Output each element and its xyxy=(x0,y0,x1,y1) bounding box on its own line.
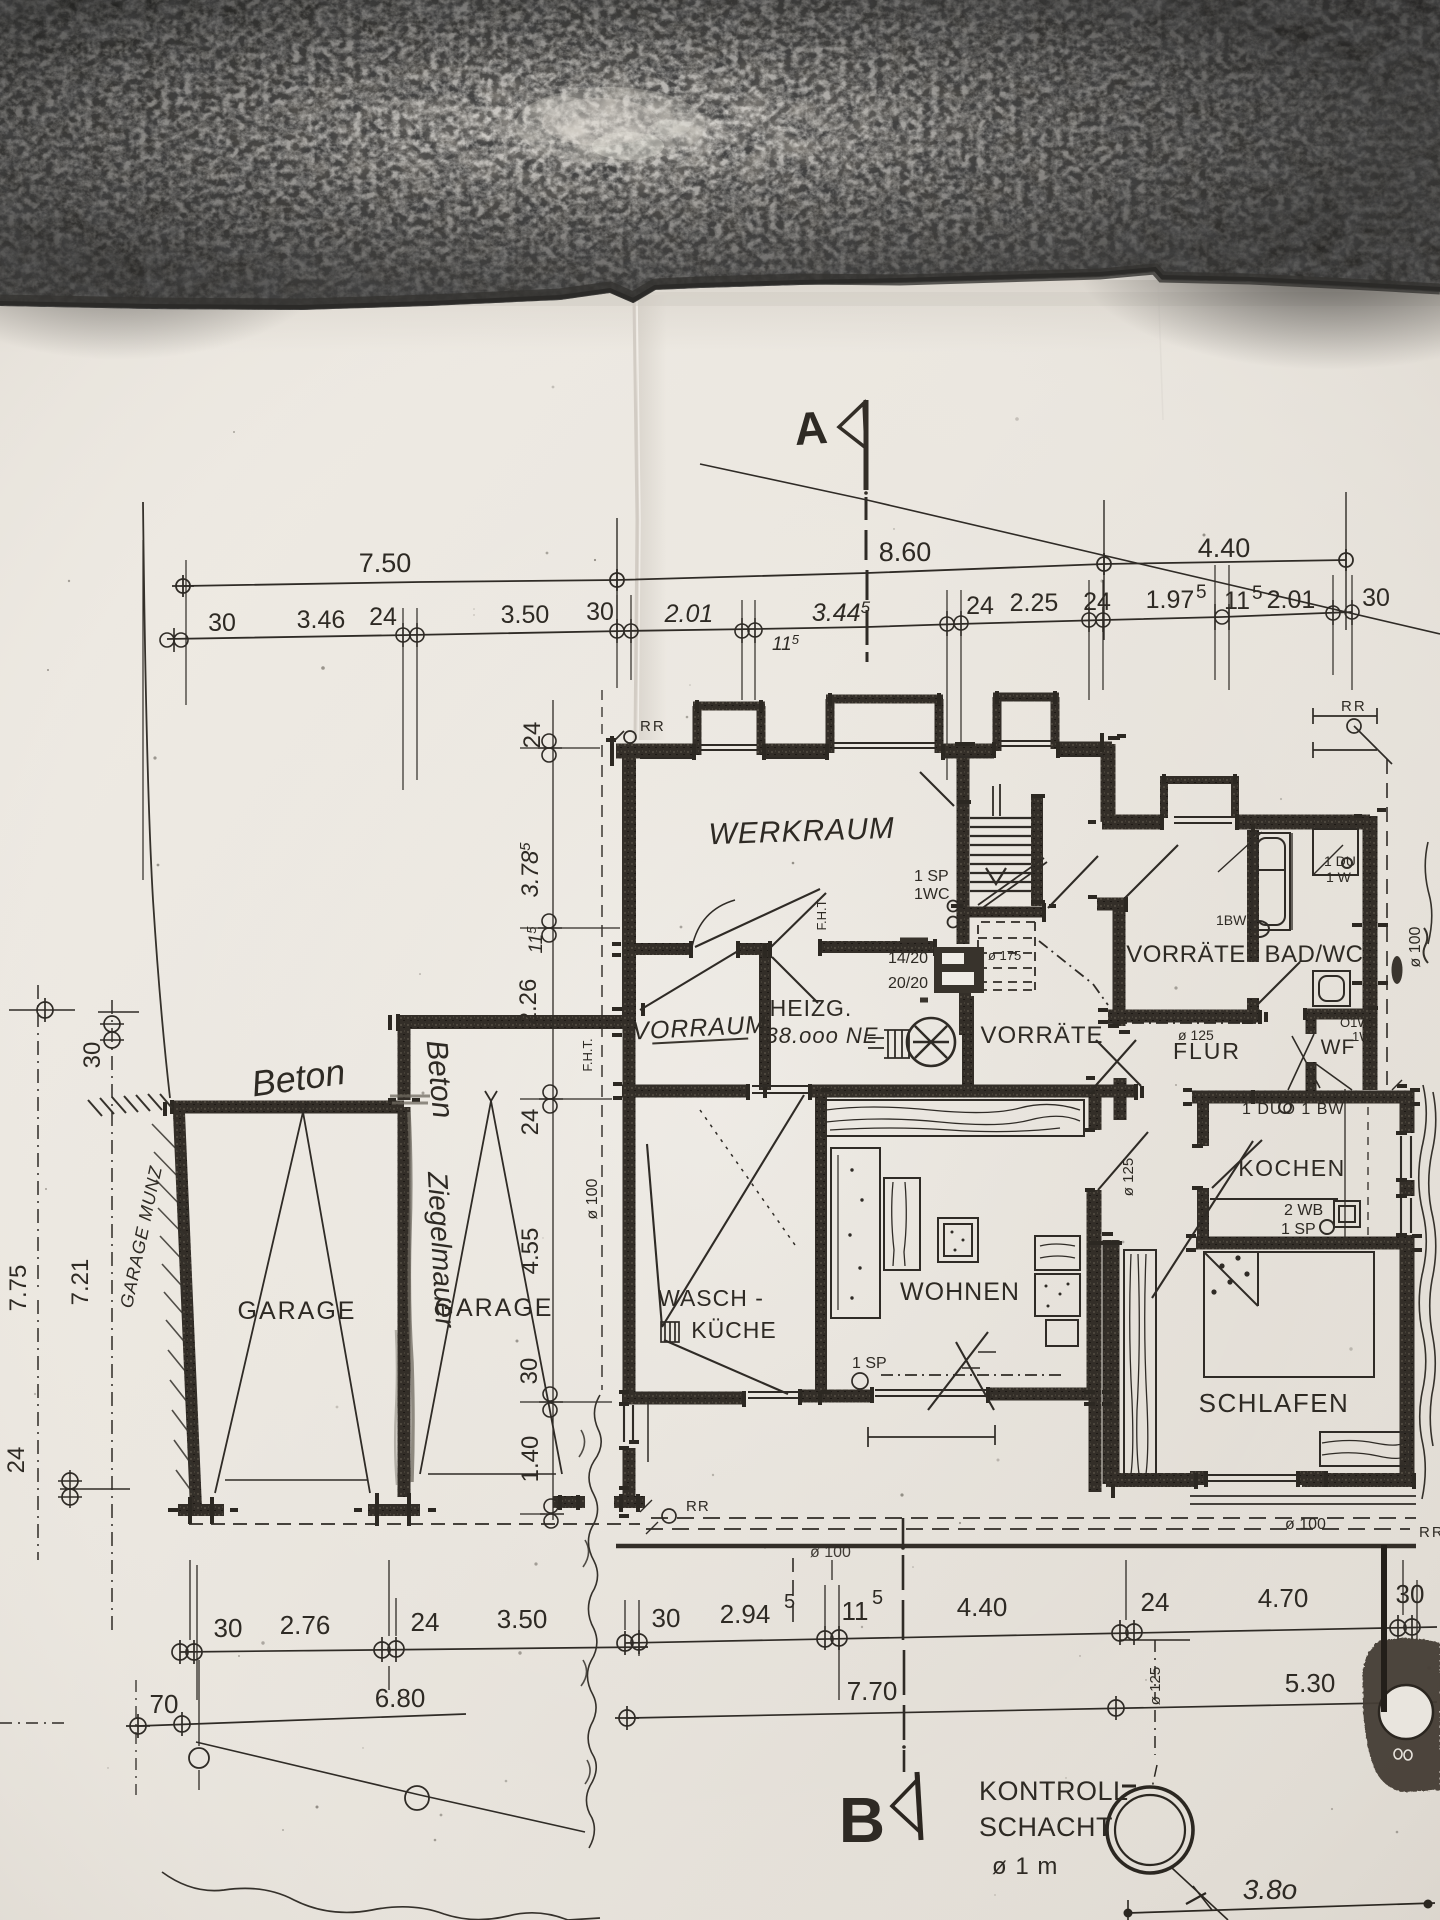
svg-text:WOHNEN: WOHNEN xyxy=(900,1278,1020,1306)
svg-text:1 SP: 1 SP xyxy=(914,868,949,885)
svg-text:8.60: 8.60 xyxy=(879,537,932,567)
svg-text:24: 24 xyxy=(517,1109,544,1136)
svg-text:24: 24 xyxy=(1141,1587,1170,1617)
svg-text:30: 30 xyxy=(1362,584,1390,612)
svg-text:1.97: 1.97 xyxy=(1146,586,1195,614)
svg-text:5: 5 xyxy=(1196,582,1207,603)
svg-text:ø 100: ø 100 xyxy=(584,1178,601,1219)
svg-text:5: 5 xyxy=(872,1587,883,1609)
svg-text:HEIZG.: HEIZG. xyxy=(770,995,853,1021)
svg-text:24: 24 xyxy=(3,1447,30,1474)
svg-text:WASCH -: WASCH - xyxy=(658,1285,764,1311)
svg-text:14/20: 14/20 xyxy=(888,950,928,967)
svg-text:7.21: 7.21 xyxy=(67,1259,94,1306)
svg-text:30: 30 xyxy=(1396,1579,1425,1609)
svg-text:2.25: 2.25 xyxy=(1010,589,1059,617)
svg-text:KONTROLL: KONTROLL xyxy=(979,1776,1129,1806)
svg-text:ø 100: ø 100 xyxy=(1407,926,1424,967)
svg-text:5: 5 xyxy=(784,1591,795,1613)
svg-text:30: 30 xyxy=(652,1603,681,1633)
svg-text:F.H.T.: F.H.T. xyxy=(580,1038,595,1071)
svg-text:3.50: 3.50 xyxy=(501,601,550,629)
svg-text:KOCHEN: KOCHEN xyxy=(1238,1155,1345,1181)
svg-text:KÜCHE: KÜCHE xyxy=(691,1317,777,1343)
svg-text:B: B xyxy=(839,1784,885,1856)
svg-text:1 SP: 1 SP xyxy=(852,1355,887,1372)
svg-text:VORRÄTE: VORRÄTE xyxy=(1126,941,1246,968)
svg-text:38.ooo NE: 38.ooo NE xyxy=(766,1023,879,1048)
svg-text:5: 5 xyxy=(1252,583,1263,604)
svg-text:ø 100: ø 100 xyxy=(810,1544,851,1561)
svg-text:7.70: 7.70 xyxy=(847,1676,898,1706)
svg-text:1 DU: 1 DU xyxy=(1324,853,1356,869)
svg-text:Ö1WB: Ö1WB xyxy=(1340,1015,1378,1030)
svg-text:ø 100: ø 100 xyxy=(1285,1516,1326,1533)
svg-text:30: 30 xyxy=(79,1042,106,1069)
svg-text:2.76: 2.76 xyxy=(280,1610,331,1640)
svg-text:1WC: 1WC xyxy=(914,886,950,903)
svg-text:1 SP: 1 SP xyxy=(1281,1221,1316,1238)
svg-text:30: 30 xyxy=(516,1358,543,1385)
svg-text:SCHACHT: SCHACHT xyxy=(979,1812,1113,1842)
svg-text:RR: RR xyxy=(1419,1524,1440,1541)
svg-text:GARAGE: GARAGE xyxy=(238,1297,357,1325)
svg-text:24: 24 xyxy=(519,722,546,749)
svg-text:VORRÄTE: VORRÄTE xyxy=(980,1022,1103,1049)
svg-text:3.50: 3.50 xyxy=(497,1604,548,1634)
svg-text:ø 125: ø 125 xyxy=(1120,1158,1137,1196)
svg-text:WERKRAUM: WERKRAUM xyxy=(708,812,895,851)
svg-text:1W: 1W xyxy=(1352,1029,1372,1044)
svg-text:A: A xyxy=(792,401,829,455)
svg-text:1 W: 1 W xyxy=(1326,869,1352,885)
svg-text:24: 24 xyxy=(966,592,994,620)
svg-text:1 DUO 1 BW: 1 DUO 1 BW xyxy=(1242,1101,1344,1118)
svg-text:2.01: 2.01 xyxy=(664,600,714,628)
svg-text:11: 11 xyxy=(842,1596,869,1626)
svg-text:ø 1 m: ø 1 m xyxy=(992,1853,1058,1880)
svg-text:30: 30 xyxy=(208,609,236,637)
svg-text:24: 24 xyxy=(1083,588,1111,616)
svg-text:1BW: 1BW xyxy=(1216,912,1247,928)
svg-text:4.40: 4.40 xyxy=(957,1592,1008,1622)
svg-text:RR: RR xyxy=(640,718,666,735)
svg-text:RR: RR xyxy=(1341,698,1367,715)
svg-text:20/20: 20/20 xyxy=(888,975,928,992)
svg-text:3.8o: 3.8o xyxy=(1243,1874,1298,1905)
svg-text:5.30: 5.30 xyxy=(1285,1668,1336,1698)
svg-text:2.94: 2.94 xyxy=(720,1599,771,1629)
svg-text:ø 175: ø 175 xyxy=(988,948,1021,963)
svg-text:4.40: 4.40 xyxy=(1198,533,1251,563)
svg-text:11: 11 xyxy=(1224,587,1250,615)
svg-text:4.55: 4.55 xyxy=(517,1228,544,1275)
svg-text:2.26: 2.26 xyxy=(515,979,542,1026)
svg-text:ø 125: ø 125 xyxy=(1147,1667,1164,1705)
svg-text:7.75: 7.75 xyxy=(5,1265,32,1312)
svg-text:3.46: 3.46 xyxy=(297,606,346,634)
svg-text:SCHLAFEN: SCHLAFEN xyxy=(1199,1388,1350,1418)
svg-text:4.70: 4.70 xyxy=(1258,1583,1309,1613)
svg-text:6.80: 6.80 xyxy=(375,1683,426,1713)
svg-text:24: 24 xyxy=(411,1607,440,1637)
svg-text:F.H.T: F.H.T xyxy=(814,899,829,930)
svg-text:RR: RR xyxy=(686,1498,710,1515)
svg-text:30: 30 xyxy=(586,598,614,626)
svg-text:24: 24 xyxy=(369,603,397,631)
svg-text:70: 70 xyxy=(150,1689,179,1719)
svg-text:ø 125: ø 125 xyxy=(1178,1027,1214,1043)
svg-text:2 WB: 2 WB xyxy=(1284,1202,1323,1219)
svg-text:7.50: 7.50 xyxy=(359,548,412,578)
svg-text:1.40: 1.40 xyxy=(517,1436,544,1483)
svg-text:30: 30 xyxy=(214,1613,243,1643)
svg-text:Beton: Beton xyxy=(420,1039,460,1120)
svg-text:WF: WF xyxy=(1321,1036,1356,1059)
svg-text:BAD/WC: BAD/WC xyxy=(1265,941,1364,968)
svg-text:2.01: 2.01 xyxy=(1267,586,1316,614)
